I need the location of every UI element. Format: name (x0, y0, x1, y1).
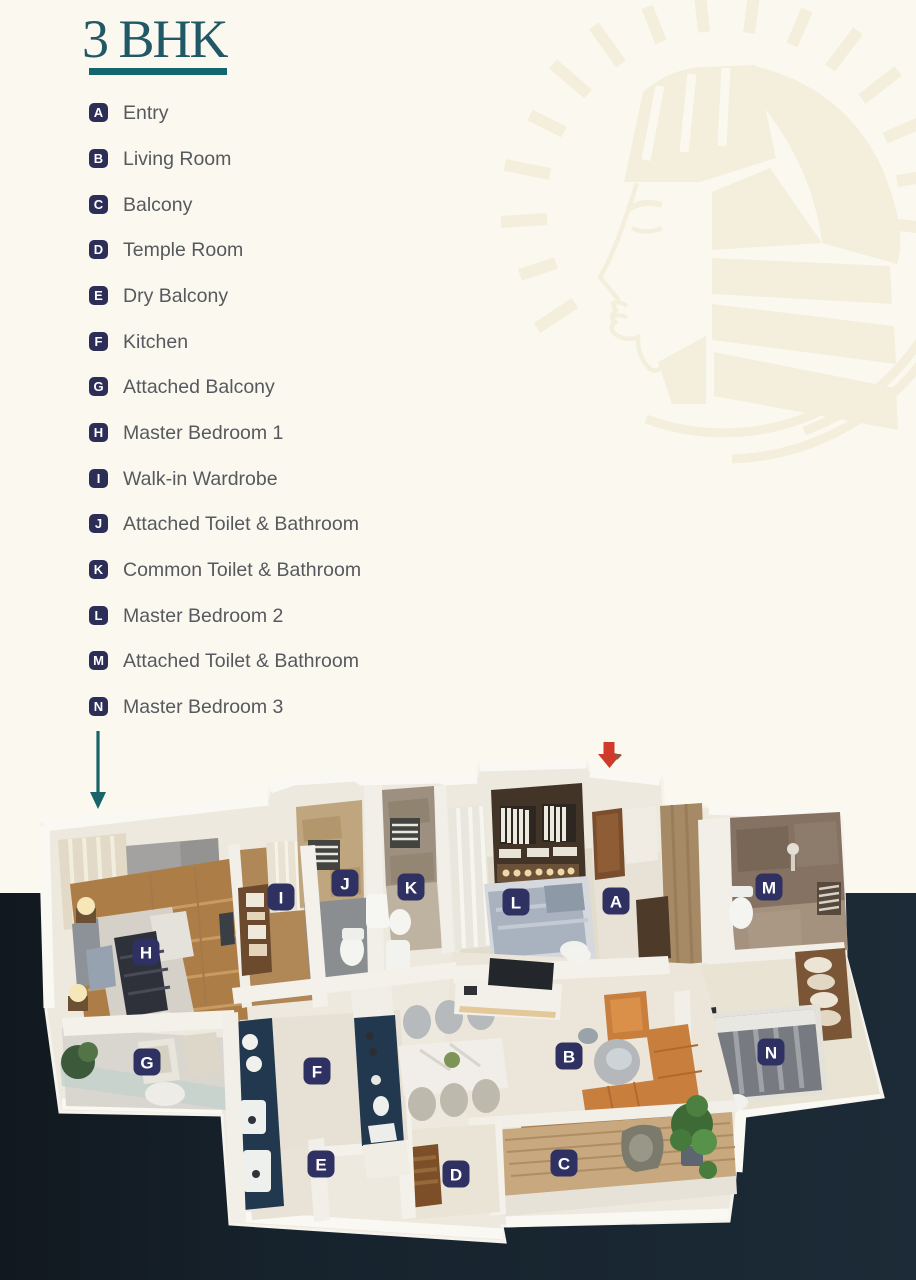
svg-text:F: F (312, 1063, 322, 1082)
svg-text:D: D (450, 1166, 462, 1185)
svg-text:J: J (340, 875, 349, 894)
svg-text:E: E (315, 1156, 326, 1175)
svg-text:M: M (762, 879, 776, 898)
svg-text:L: L (511, 894, 521, 913)
svg-text:C: C (558, 1155, 570, 1174)
svg-text:A: A (610, 893, 622, 912)
svg-text:K: K (405, 879, 418, 898)
svg-text:I: I (279, 889, 284, 908)
svg-text:B: B (563, 1048, 575, 1067)
svg-text:G: G (140, 1054, 153, 1073)
svg-text:H: H (140, 944, 152, 963)
svg-text:N: N (765, 1044, 777, 1063)
